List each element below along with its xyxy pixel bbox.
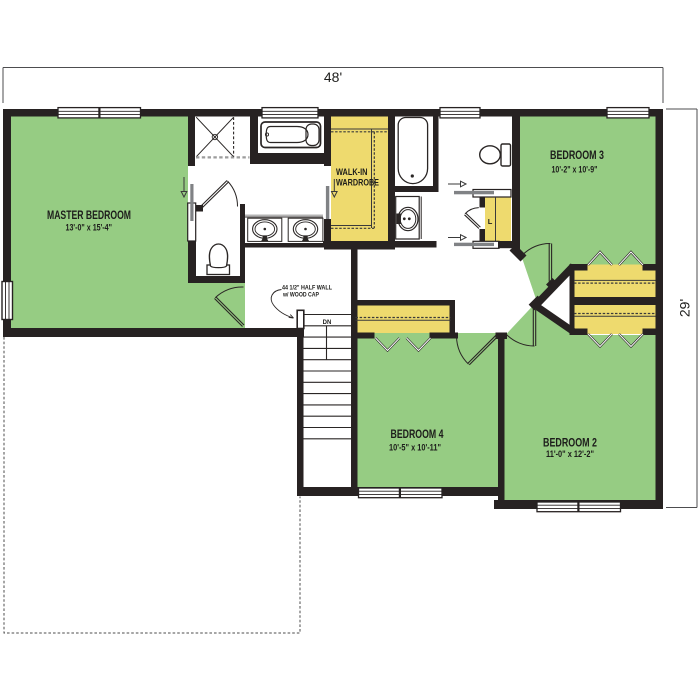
svg-text:BEDROOM 3: BEDROOM 3 [550, 150, 604, 162]
svg-text:DN: DN [323, 320, 332, 326]
svg-text:44 1/2" HALF WALL: 44 1/2" HALF WALL [282, 286, 332, 292]
svg-text:11'-0" x 12'-2": 11'-0" x 12'-2" [546, 449, 594, 459]
svg-text:BEDROOM 2: BEDROOM 2 [543, 438, 597, 450]
svg-text:10'-2" x 10'-9": 10'-2" x 10'-9" [552, 165, 598, 175]
svg-text:10'-5" x 10'-11": 10'-5" x 10'-11" [389, 443, 441, 453]
svg-text:WARDROBE: WARDROBE [336, 178, 379, 188]
svg-text:WALK-IN: WALK-IN [336, 167, 368, 177]
svg-text:BEDROOM 4: BEDROOM 4 [391, 429, 444, 441]
svg-text:MASTER BEDROOM: MASTER BEDROOM [47, 210, 131, 222]
svg-text:29': 29' [677, 299, 693, 317]
svg-text:13'-0" x 15'-4": 13'-0" x 15'-4" [66, 223, 113, 233]
svg-text:48': 48' [324, 69, 342, 85]
svg-text:w/ WOOD CAP: w/ WOOD CAP [282, 293, 319, 299]
svg-text:L: L [488, 217, 493, 226]
